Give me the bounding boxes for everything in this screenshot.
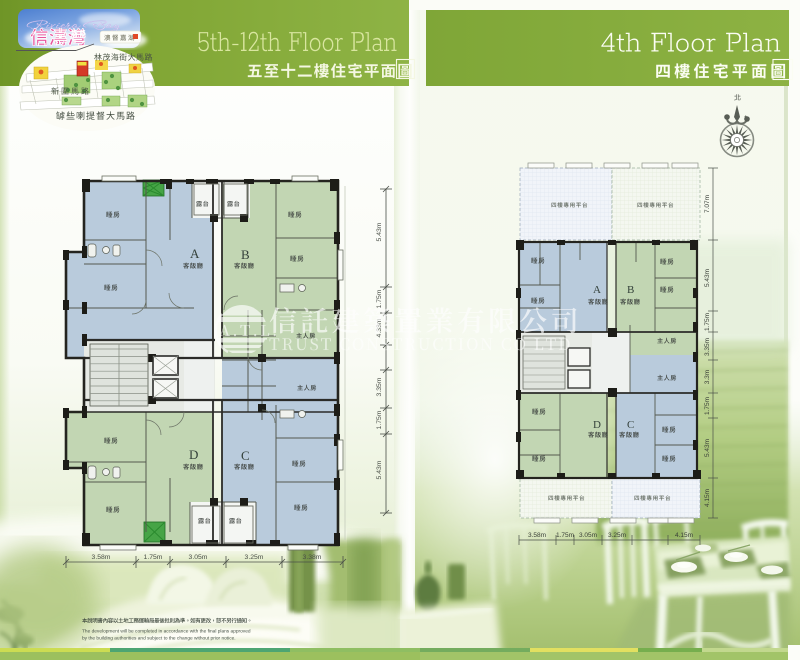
svg-text:3.25m: 3.25m: [608, 532, 626, 539]
svg-text:3.3m: 3.3m: [704, 370, 711, 384]
svg-text:5.43m: 5.43m: [376, 222, 383, 241]
svg-text:The development will be comple: The development will be completed in acc…: [82, 629, 251, 635]
svg-text:3.05m: 3.05m: [189, 554, 208, 561]
svg-text:3.58m: 3.58m: [92, 554, 111, 561]
svg-text:1.75m: 1.75m: [704, 313, 711, 331]
svg-text:1.75m: 1.75m: [376, 289, 383, 308]
svg-text:5.43m: 5.43m: [376, 460, 383, 479]
svg-text:B: B: [627, 284, 634, 296]
svg-text:5.43m: 5.43m: [704, 269, 711, 287]
svg-text:A: A: [190, 246, 200, 261]
svg-text:3.05m: 3.05m: [579, 532, 597, 539]
svg-text:7.07m: 7.07m: [704, 195, 711, 213]
svg-text:D: D: [189, 447, 198, 462]
svg-text:1.75m: 1.75m: [376, 410, 383, 429]
svg-text:5.43m: 5.43m: [704, 439, 711, 457]
svg-text:D: D: [593, 419, 601, 431]
svg-text:1.75m: 1.75m: [704, 397, 711, 415]
svg-text:3.35m: 3.35m: [376, 377, 383, 396]
svg-text:4.15m: 4.15m: [675, 532, 693, 539]
svg-text:by the building authorities an: by the building authorities and subject …: [82, 636, 236, 642]
svg-text:3.35m: 3.35m: [704, 338, 711, 356]
svg-text:3.38m: 3.38m: [303, 554, 322, 561]
svg-text:C: C: [627, 419, 634, 431]
svg-text:C: C: [241, 448, 250, 463]
svg-text:4.15m: 4.15m: [704, 489, 711, 507]
svg-text:A: A: [593, 284, 601, 296]
svg-text:B: B: [241, 247, 250, 262]
svg-text:3.25m: 3.25m: [245, 554, 264, 561]
svg-text:1.75m: 1.75m: [144, 554, 163, 561]
svg-text:1.75m: 1.75m: [556, 532, 574, 539]
svg-text:3.58m: 3.58m: [528, 532, 546, 539]
